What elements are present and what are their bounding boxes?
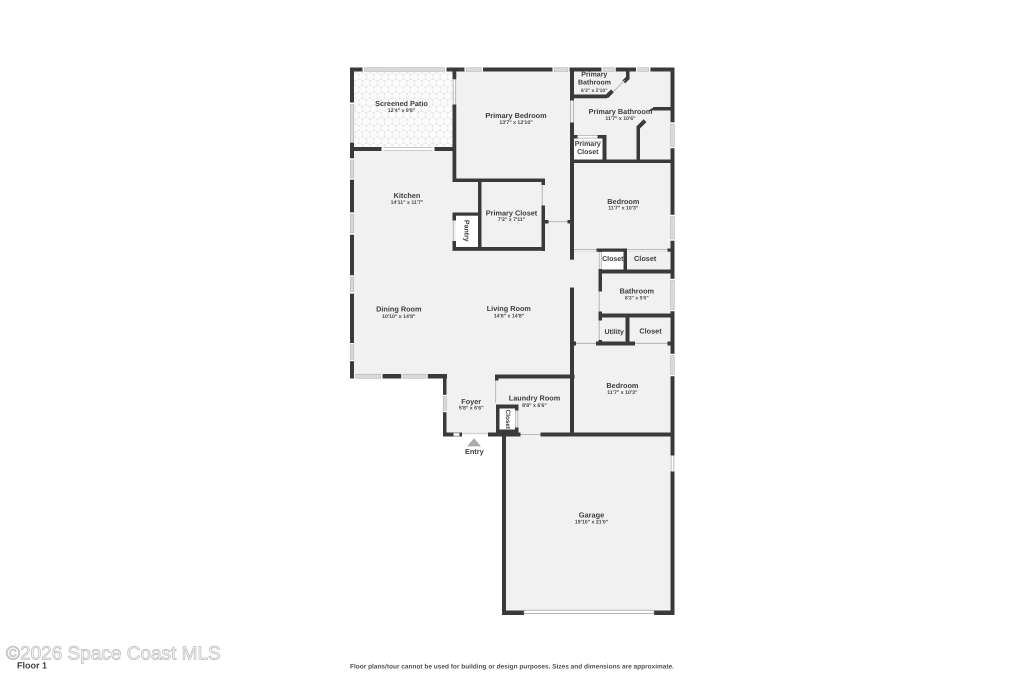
svg-text:Floor 1: Floor 1 [17, 661, 47, 671]
svg-text:19'10" x 21'0": 19'10" x 21'0" [575, 520, 609, 526]
svg-text:11'7" x 10'3": 11'7" x 10'3" [607, 390, 638, 396]
svg-text:13'7" x 12'10": 13'7" x 12'10" [499, 120, 533, 126]
svg-text:Entry: Entry [465, 447, 485, 456]
svg-text:Closet: Closet [602, 255, 624, 263]
svg-text:Floor plans/tour cannot be use: Floor plans/tour cannot be used for buil… [350, 663, 674, 670]
svg-text:Primary: Primary [575, 140, 601, 148]
svg-text:6'3" x 2'10": 6'3" x 2'10" [581, 88, 608, 94]
svg-text:Kitchen: Kitchen [394, 191, 421, 200]
svg-text:11'7" x 10'6": 11'7" x 10'6" [605, 116, 636, 122]
svg-text:Utility: Utility [604, 328, 624, 336]
svg-text:11'7" x 10'3": 11'7" x 10'3" [608, 206, 639, 212]
svg-text:8'3" x 5'0": 8'3" x 5'0" [625, 296, 649, 302]
svg-text:Primary Closet: Primary Closet [486, 208, 538, 217]
svg-text:Bedroom: Bedroom [607, 197, 640, 206]
svg-text:Foyer: Foyer [461, 397, 481, 406]
svg-text:10'10" x 14'8": 10'10" x 14'8" [382, 314, 416, 320]
svg-text:14'8" x 14'8": 14'8" x 14'8" [494, 313, 525, 319]
svg-text:Garage: Garage [579, 510, 604, 519]
svg-text:Bedroom: Bedroom [606, 381, 639, 390]
svg-text:Dining Room: Dining Room [376, 305, 422, 314]
svg-text:Laundry Room: Laundry Room [509, 394, 561, 403]
svg-text:14'11" x 11'7": 14'11" x 11'7" [391, 200, 424, 206]
svg-text:Primary: Primary [581, 71, 607, 79]
svg-text:Living Room: Living Room [487, 304, 532, 313]
svg-text:12'4" x 9'8": 12'4" x 9'8" [388, 108, 416, 114]
svg-text:Closet: Closet [634, 254, 657, 263]
svg-text:8'8" x 6'6": 8'8" x 6'6" [522, 403, 547, 409]
svg-text:Closet: Closet [639, 327, 662, 336]
svg-text:5'8" x 6'6": 5'8" x 6'6" [459, 406, 484, 412]
svg-text:7'2" x 7'11": 7'2" x 7'11" [498, 217, 526, 223]
svg-text:Bathroom: Bathroom [620, 287, 655, 296]
svg-text:Primary Bathroom: Primary Bathroom [589, 107, 653, 116]
svg-text:Bathroom: Bathroom [578, 79, 611, 87]
svg-text:Closet: Closet [504, 410, 511, 430]
svg-text:Primary Bedroom: Primary Bedroom [485, 111, 547, 120]
svg-text:Pantry: Pantry [463, 220, 470, 242]
svg-text:Closet: Closet [577, 148, 599, 156]
svg-text:Screened Patio: Screened Patio [375, 99, 428, 108]
